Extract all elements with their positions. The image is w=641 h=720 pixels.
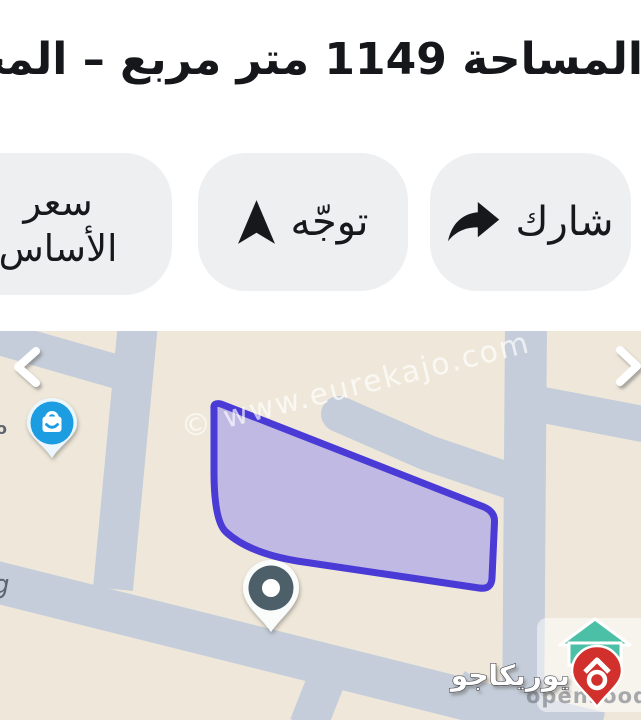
- map-label-fragment-upper: o: [0, 419, 7, 438]
- screenshot-root: المساحة 1149 متر مربع – المحيط 147 متر ش…: [0, 0, 641, 720]
- directions-button[interactable]: توجّه: [198, 153, 408, 291]
- plot-measurements-text: المساحة 1149 متر مربع – المحيط 147 متر: [0, 34, 641, 85]
- map-label-fragment-lower: g: [0, 570, 10, 600]
- road-bottom-branch-1: [308, 655, 336, 720]
- share-arrow-icon: [448, 202, 500, 242]
- directions-button-label: توجّه: [291, 199, 369, 245]
- base-price-button[interactable]: سعر الأساس: [0, 153, 172, 295]
- navigation-arrow-icon: [238, 200, 275, 244]
- road-top-right-branch: [538, 404, 641, 425]
- share-button-label: شارك: [516, 199, 614, 245]
- brand-arabic-text: يوريكاجو: [449, 659, 570, 692]
- base-price-label-line2: الأساس: [0, 227, 117, 271]
- share-button[interactable]: شارك: [430, 153, 631, 291]
- road-left-vertical: [113, 331, 138, 589]
- base-price-label-line1: سعر: [23, 181, 92, 225]
- map-view[interactable]: © www.eurekajo.com o g: [0, 331, 641, 720]
